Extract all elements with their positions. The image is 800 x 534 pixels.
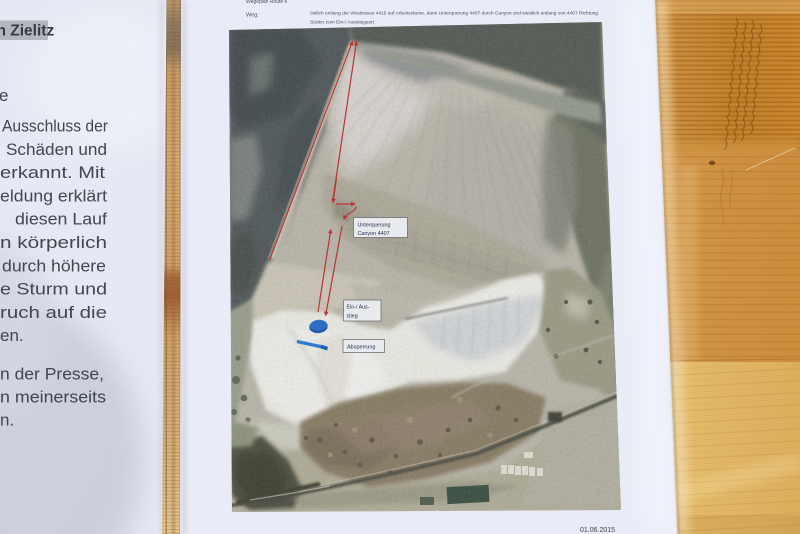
svg-text:Schäden und: Schäden und <box>6 140 107 159</box>
svg-text:n körperlich: n körperlich <box>0 233 107 252</box>
svg-text:n meinerseits: n meinerseits <box>0 388 106 407</box>
svg-text:durch höhere: durch höhere <box>2 256 106 275</box>
svg-text:diesen Lauf: diesen Lauf <box>15 210 107 229</box>
svg-text:e Sturm und: e Sturm und <box>0 280 107 299</box>
svg-text:Canyon 4407: Canyon 4407 <box>358 231 390 237</box>
svg-text:ruch auf die: ruch auf die <box>0 303 107 322</box>
svg-text:Süden zum Ein-/ Ausstiegsort.: Süden zum Ein-/ Ausstiegsort. <box>310 20 376 26</box>
svg-text:eldung erklärt: eldung erklärt <box>0 186 107 205</box>
svg-text:stieg: stieg <box>347 314 358 320</box>
svg-text:Ein-/ Aus-: Ein-/ Aus- <box>347 305 370 311</box>
svg-text:n Zielitz: n Zielitz <box>0 23 54 40</box>
svg-text:Weg:: Weg: <box>246 13 259 19</box>
svg-text:Wegeplan Route 6: Wegeplan Route 6 <box>246 0 288 5</box>
svg-text:erkannt. Mit: erkannt. Mit <box>0 163 105 182</box>
svg-text:en.: en. <box>0 326 24 345</box>
svg-text:e: e <box>0 86 8 105</box>
svg-text:Absperrung: Absperrung <box>347 344 375 350</box>
svg-text:östlich entlang der Westtrasse: östlich entlang der Westtrasse 4415 auf … <box>310 11 598 17</box>
svg-text:01.06.2015: 01.06.2015 <box>580 527 615 534</box>
svg-text:Unterquerung: Unterquerung <box>358 223 391 229</box>
svg-text:n der Presse,: n der Presse, <box>0 365 104 384</box>
svg-text:n.: n. <box>0 411 14 430</box>
svg-text:Ausschluss der: Ausschluss der <box>2 117 108 136</box>
